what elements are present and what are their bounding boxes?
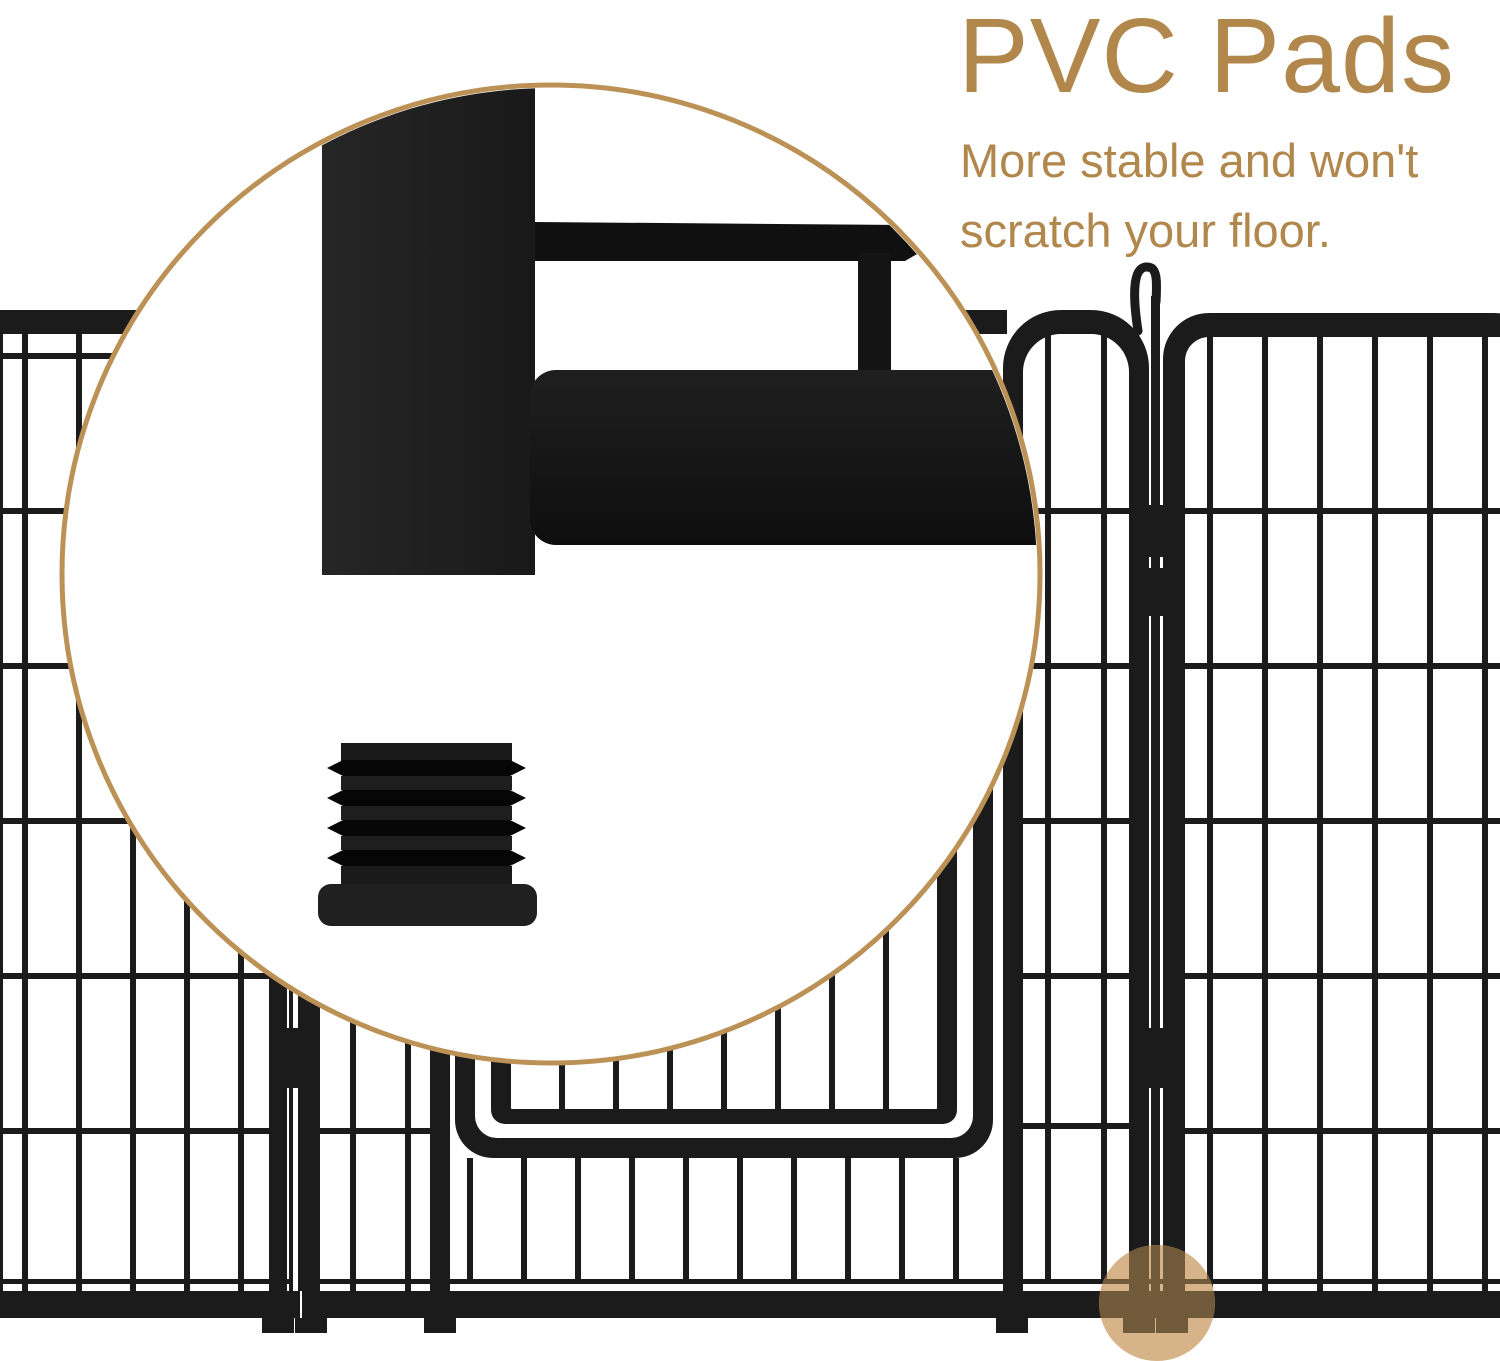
subtitle-line-2: scratch your floor. (960, 196, 1478, 266)
product-image: PVC Pads More stable and won't scratch y… (0, 0, 1500, 1361)
pvc-pad (318, 743, 537, 926)
magnified-frame-post (322, 60, 535, 575)
page-title: PVC Pads (958, 2, 1478, 110)
headline: PVC Pads More stable and won't scratch y… (958, 2, 1478, 266)
pvc-pad-base (318, 884, 537, 926)
magnified-bottom-rail (530, 370, 1050, 545)
gate-lower-wires (467, 1158, 959, 1279)
subtitle: More stable and won't scratch your floor… (960, 126, 1478, 266)
fence-panel-right (1156, 313, 1500, 1333)
magnified-connector-wire (858, 253, 891, 375)
subtitle-line-1: More stable and won't (960, 126, 1478, 196)
